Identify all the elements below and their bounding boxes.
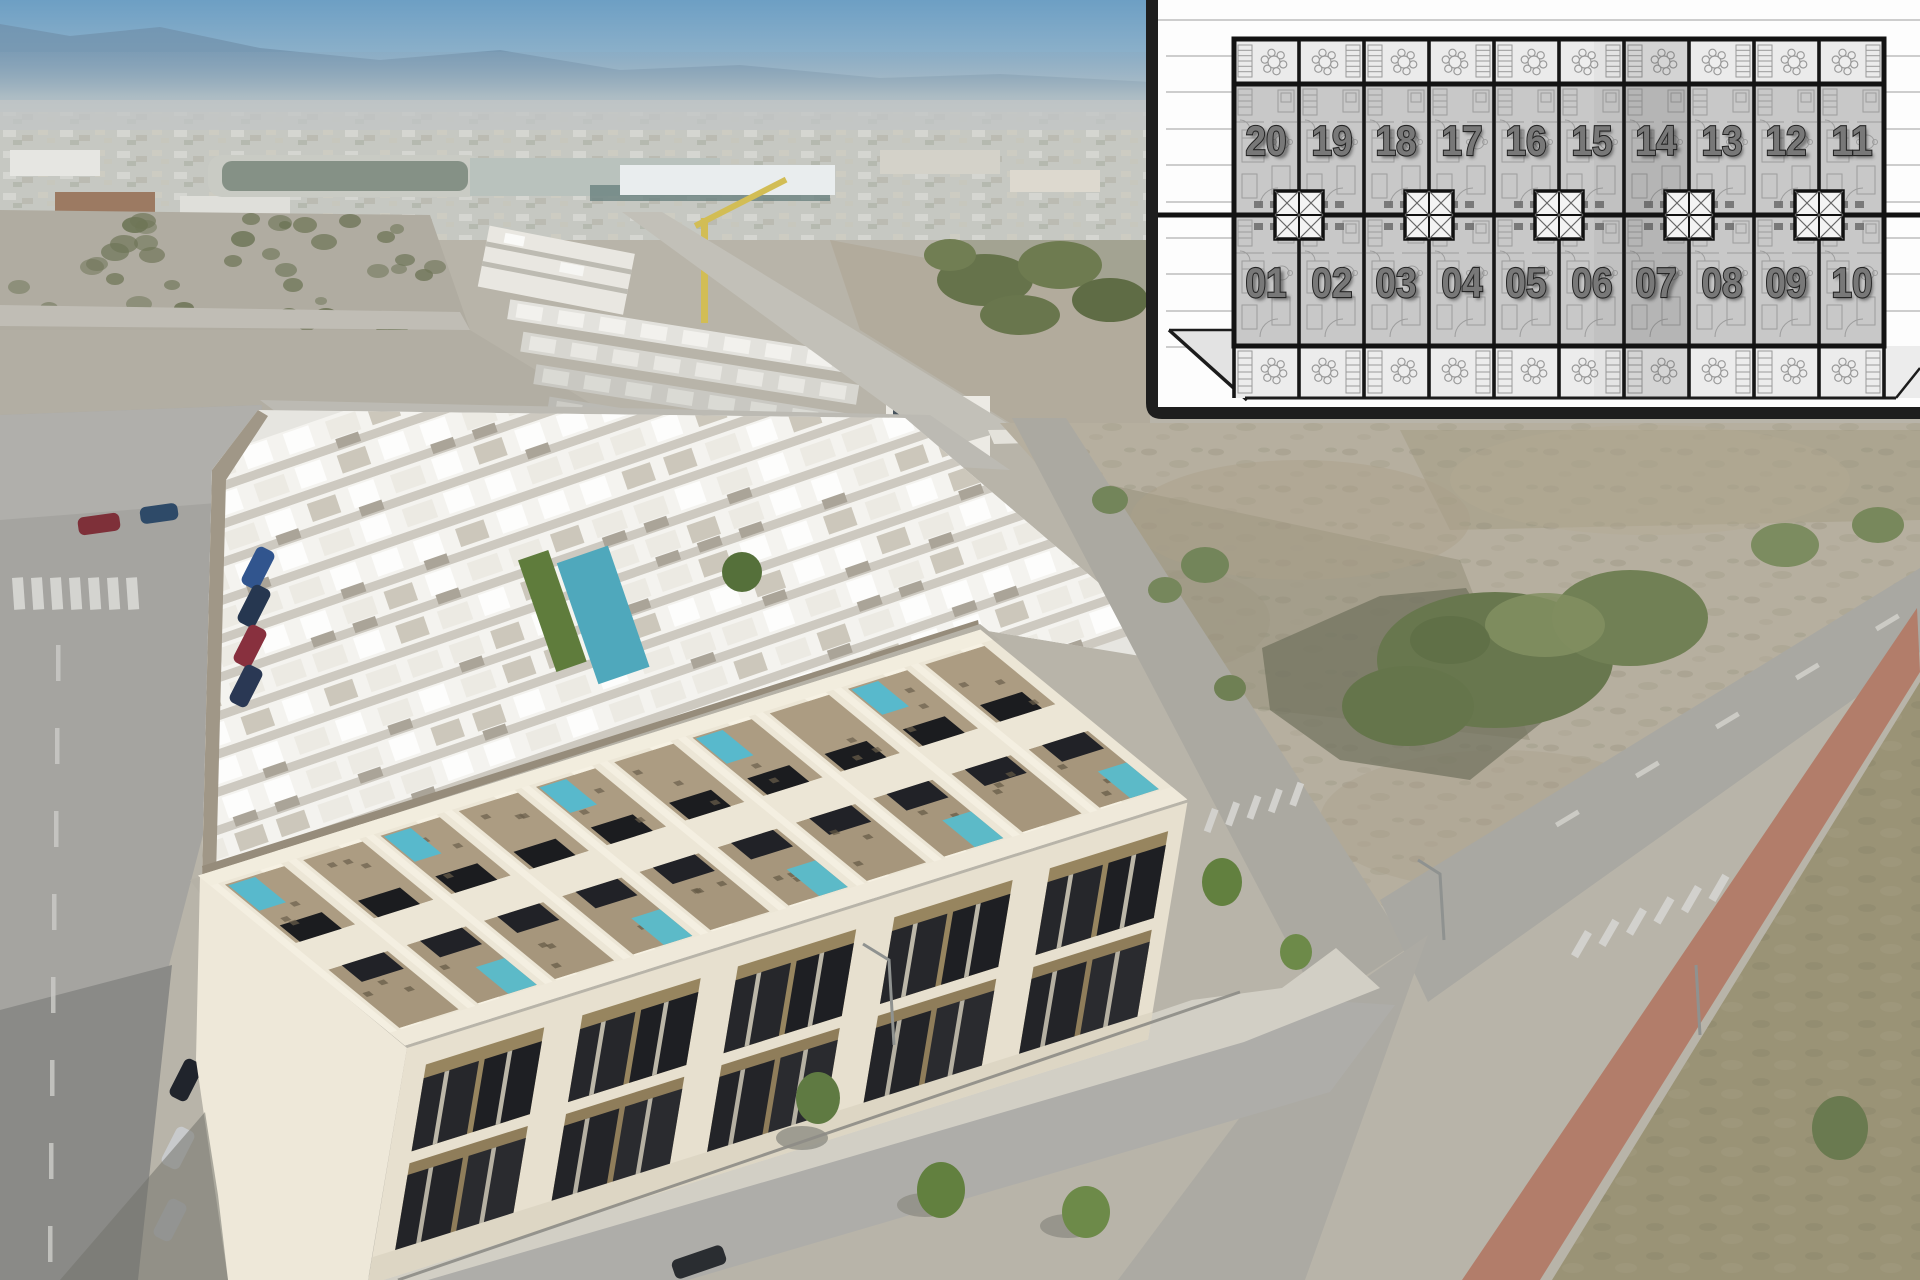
svg-text:12: 12	[1766, 117, 1807, 164]
svg-text:17: 17	[1442, 117, 1483, 164]
svg-text:14: 14	[1636, 117, 1678, 164]
svg-text:01: 01	[1246, 259, 1287, 306]
svg-text:16: 16	[1506, 117, 1547, 164]
svg-text:03: 03	[1376, 259, 1417, 306]
svg-text:05: 05	[1506, 259, 1547, 306]
svg-text:10: 10	[1832, 259, 1873, 306]
svg-text:07: 07	[1636, 259, 1677, 306]
svg-text:19: 19	[1312, 117, 1353, 164]
svg-text:04: 04	[1442, 259, 1484, 306]
svg-text:06: 06	[1572, 259, 1613, 306]
svg-text:02: 02	[1312, 259, 1353, 306]
svg-text:13: 13	[1702, 117, 1743, 164]
svg-text:11: 11	[1832, 117, 1873, 164]
svg-text:15: 15	[1572, 117, 1613, 164]
svg-text:09: 09	[1766, 259, 1807, 306]
svg-text:20: 20	[1246, 117, 1287, 164]
svg-text:08: 08	[1702, 259, 1743, 306]
svg-text:18: 18	[1376, 117, 1417, 164]
